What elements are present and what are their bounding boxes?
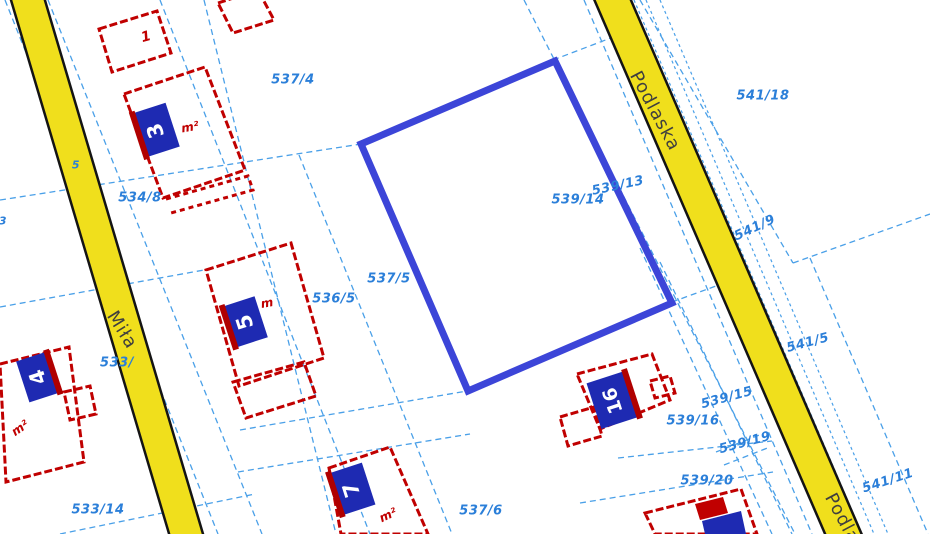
parcel-label-541-11: 541/11: [860, 466, 915, 497]
label-layer: PodlaskaMiłaPodlaska537/4534/8537/5536/5…: [0, 0, 930, 534]
parcel-label-533-: 533/: [100, 356, 134, 371]
parcel-label-539-16: 539/16: [667, 414, 720, 429]
parcel-label-539-13: 539/13: [591, 173, 646, 199]
building-number: 4: [26, 367, 50, 387]
building-number-plate-7: 7: [329, 463, 376, 516]
street-name-podlaska: Podlaska: [820, 490, 879, 534]
parcel-label-537-5: 537/5: [367, 272, 410, 287]
parcel-label-5: 5: [72, 159, 80, 172]
parcel-label-541-18: 541/18: [737, 89, 790, 104]
building-number: 3: [144, 120, 168, 140]
building-number-plate-16: 16: [587, 371, 640, 429]
parcel-label-3: 3: [0, 215, 7, 228]
parcel-label-539-20: 539/20: [681, 474, 734, 489]
building-number-plate-3: 3: [132, 103, 180, 158]
building-annotation: m: [260, 295, 275, 311]
parcel-label-537-6: 537/6: [459, 504, 502, 519]
parcel-label-539-15: 539/15: [699, 384, 754, 412]
building-number: 5: [233, 312, 257, 332]
parcel-label-534-8: 534/8: [118, 191, 161, 206]
building-number: 16: [600, 384, 626, 415]
street-name-miła: Miła: [102, 307, 141, 353]
street-name-podlaska: Podlaska: [625, 68, 684, 155]
parcel-label-537-4: 537/4: [271, 73, 314, 88]
building-annotation: m²: [9, 417, 32, 439]
plate-wall-stripe: [621, 368, 643, 419]
parcel-label-541-5: 541/5: [785, 330, 831, 356]
parcel-label-536-5: 536/5: [312, 292, 355, 307]
parcel-label-539-19: 539/19: [717, 429, 772, 457]
building-annotation: m²: [180, 119, 200, 136]
building-annotation: m²: [377, 505, 399, 525]
parcel-label-533-14: 533/14: [72, 503, 125, 518]
parcel-label-541-9: 541/9: [732, 212, 778, 244]
cadastral-map: PodlaskaMiłaPodlaska537/4534/8537/5536/5…: [0, 0, 930, 534]
building-number: 7: [340, 479, 364, 499]
building-number-plate-4: 4: [16, 352, 60, 403]
building-annotation: 1: [139, 28, 153, 46]
